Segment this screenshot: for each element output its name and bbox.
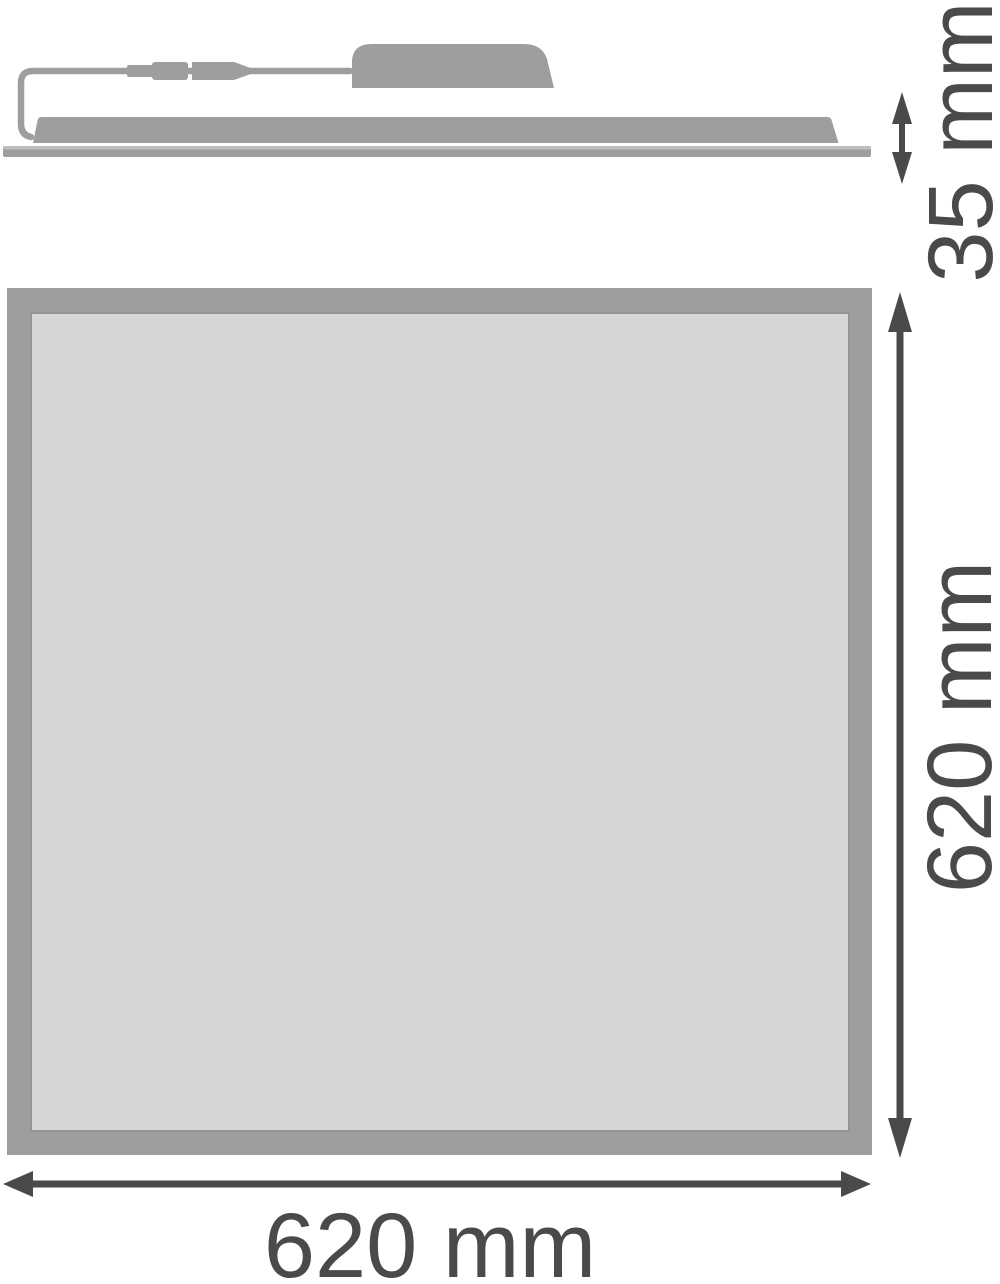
arrow-up-icon — [892, 92, 912, 124]
panel-side-profile — [33, 117, 839, 143]
side-height-label: 35 mm — [913, 0, 1000, 292]
mounting-plate-highlight — [3, 146, 871, 150]
front-view — [7, 288, 872, 1155]
connector-body-icon — [192, 62, 252, 80]
front-width-label: 620 mm — [230, 1198, 630, 1284]
drawing-canvas — [0, 0, 1000, 1284]
panel-face — [31, 313, 849, 1131]
cable-plug-icon — [127, 65, 153, 77]
arrow-right-icon — [841, 1171, 871, 1197]
dimension-drawing: 35 mm 620 mm 620 mm — [0, 0, 1000, 1284]
arrow-up-icon — [888, 292, 912, 332]
driver-box — [352, 44, 554, 88]
arrow-left-icon — [3, 1171, 33, 1197]
connector-socket-icon — [152, 62, 188, 80]
side-view — [3, 44, 871, 157]
arrow-down-icon — [892, 152, 912, 184]
arrow-shaft — [29, 1181, 842, 1188]
front-width-dimension — [3, 1171, 871, 1197]
side-height-dimension — [892, 92, 912, 184]
arrow-down-icon — [888, 1118, 912, 1158]
arrow-shaft — [897, 328, 904, 1124]
front-height-label: 620 mm — [912, 527, 1000, 927]
